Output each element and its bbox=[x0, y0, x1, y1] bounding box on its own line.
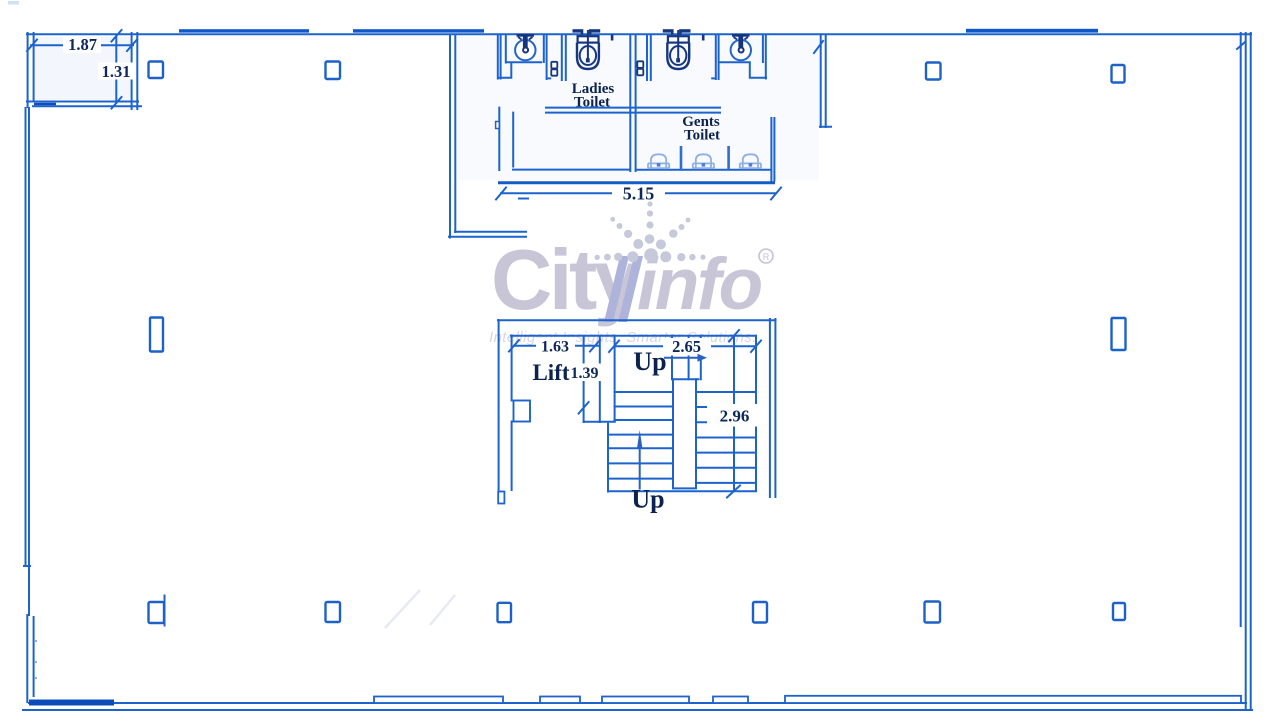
svg-text:1.87: 1.87 bbox=[68, 35, 97, 54]
svg-text:1.31: 1.31 bbox=[102, 62, 131, 81]
svg-text:R: R bbox=[763, 252, 770, 262]
svg-text:Intelligent Insights. Smarter: Intelligent Insights. Smarter Solutions. bbox=[489, 329, 757, 346]
svg-text:2.65: 2.65 bbox=[672, 337, 701, 356]
svg-text:1.39: 1.39 bbox=[571, 365, 599, 382]
svg-text:Up: Up bbox=[631, 485, 664, 514]
svg-text:Lift: Lift bbox=[532, 360, 569, 385]
svg-text:1.63: 1.63 bbox=[541, 338, 569, 355]
svg-text:Up: Up bbox=[633, 347, 666, 376]
svg-text:5.15: 5.15 bbox=[623, 183, 655, 203]
svg-text:Toilet: Toilet bbox=[684, 128, 720, 144]
svg-text:2.96: 2.96 bbox=[720, 407, 750, 426]
